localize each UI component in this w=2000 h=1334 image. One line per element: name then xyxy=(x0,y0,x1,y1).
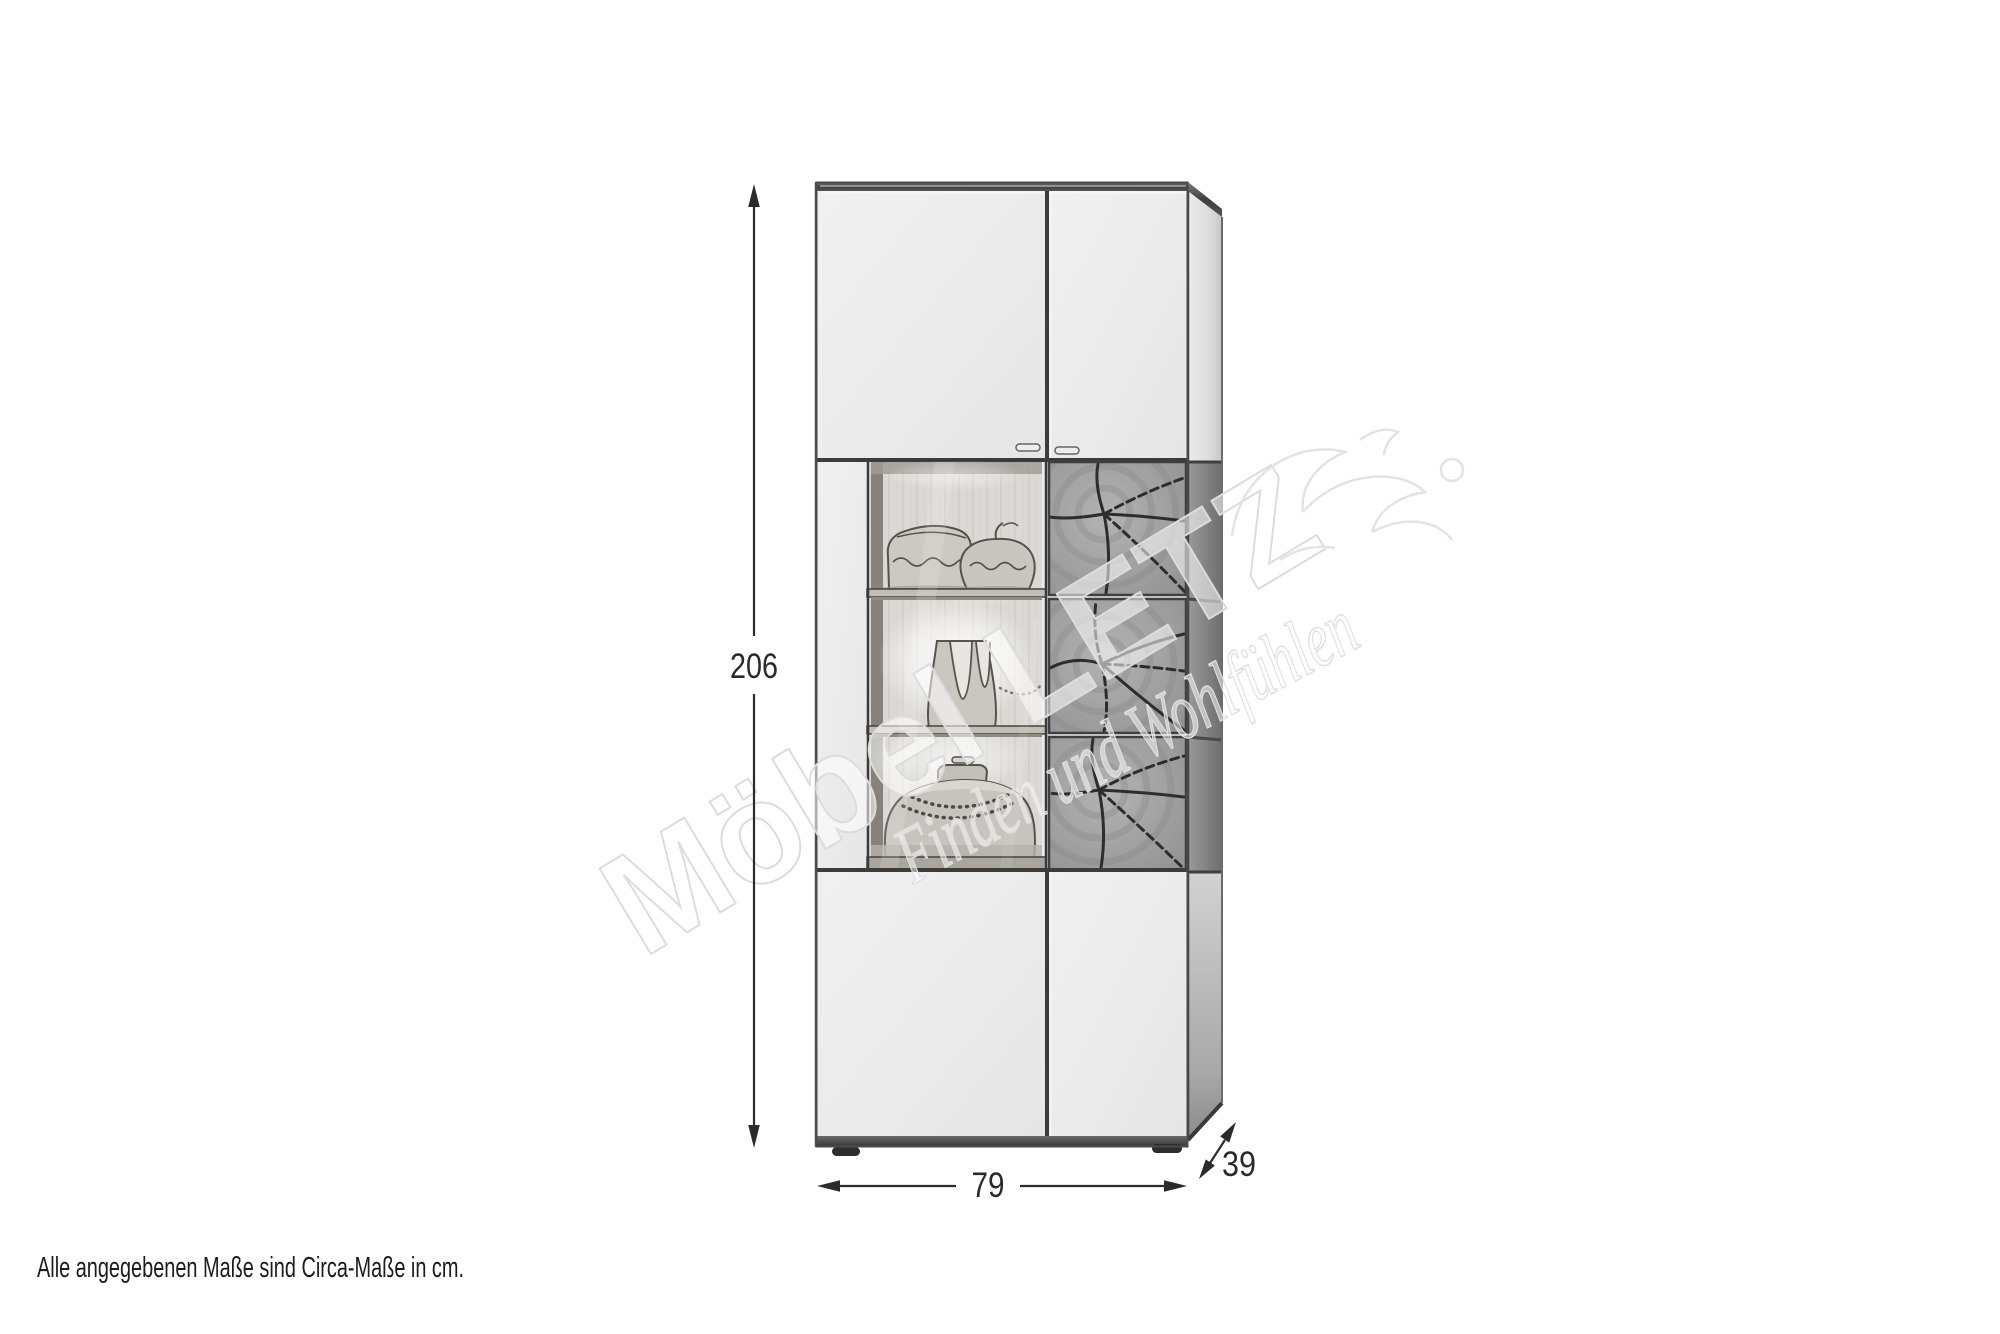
lower-doors xyxy=(822,872,1186,1138)
width-dimension-label: 79 xyxy=(972,1166,1005,1205)
depth-dimension-label: 39 xyxy=(1222,1145,1256,1184)
door-handle-left[interactable] xyxy=(1016,444,1040,451)
foot-right xyxy=(1152,1144,1182,1153)
side-panel-bottom xyxy=(1188,872,1222,1140)
height-dimension-label: 206 xyxy=(730,647,778,686)
cabinet-bottom-edge xyxy=(816,1136,1188,1147)
upper-door-gap xyxy=(1045,191,1049,458)
caption: Alle angegebenen Maße sind Circa-Maße in… xyxy=(37,1252,464,1284)
lower-door-gap xyxy=(1045,872,1049,1138)
cabinet-dimension-diagram: Möbel LETZ Finden und Wohlfühlen 206 7 xyxy=(0,0,2000,1334)
upper-door-right[interactable] xyxy=(1049,191,1186,458)
dimension-drawing-page: Möbel LETZ Finden und Wohlfühlen 206 7 xyxy=(0,0,2000,1334)
upper-doors xyxy=(816,191,1188,462)
upper-door-left[interactable] xyxy=(822,191,1045,458)
lower-door-left[interactable] xyxy=(822,872,1045,1138)
foot-left xyxy=(832,1147,860,1156)
door-handle-right[interactable] xyxy=(1055,447,1079,454)
lower-door-right[interactable] xyxy=(1049,872,1186,1138)
side-panel-top xyxy=(1188,191,1222,462)
